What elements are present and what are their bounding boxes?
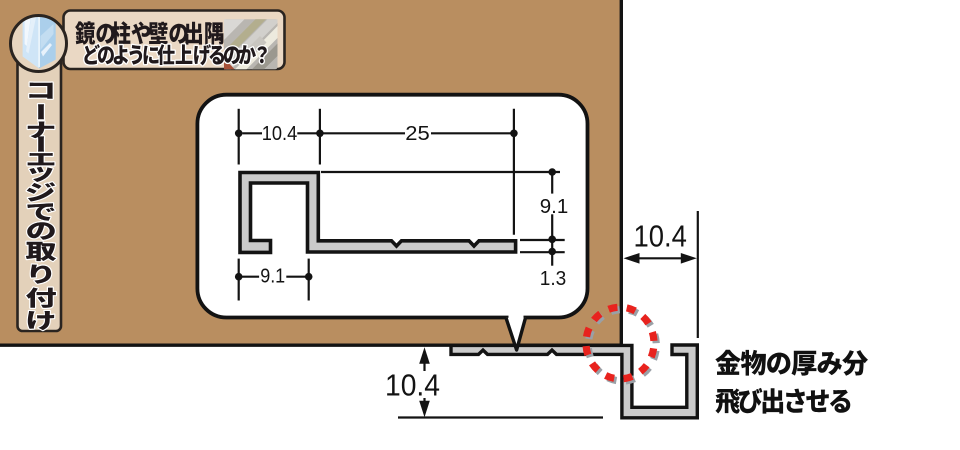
svg-text:10.4: 10.4 [385, 368, 440, 403]
svg-text:25: 25 [405, 122, 430, 145]
svg-text:10.4: 10.4 [634, 219, 687, 254]
svg-text:9.1: 9.1 [260, 265, 285, 288]
svg-text:10.4: 10.4 [262, 122, 298, 145]
svg-text:1.3: 1.3 [540, 267, 567, 290]
svg-text:9.1: 9.1 [540, 195, 569, 218]
